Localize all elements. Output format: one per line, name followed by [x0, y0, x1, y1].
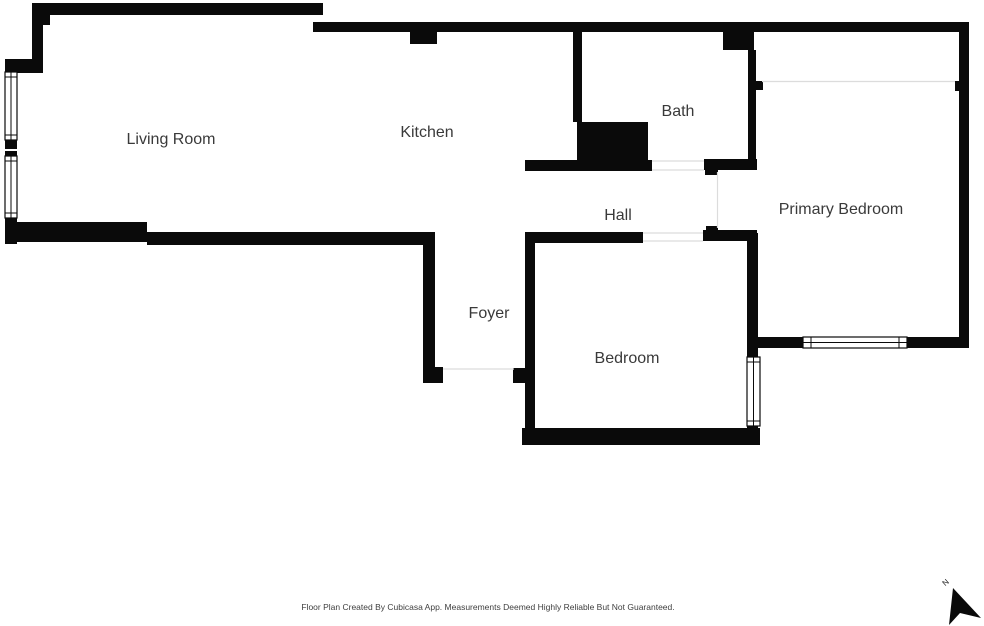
- north-indicator: N: [941, 577, 981, 625]
- room-label-primary-bedroom: Primary Bedroom: [779, 201, 903, 218]
- room-label-bedroom: Bedroom: [595, 350, 660, 367]
- wall-bedroom-bottom: [522, 428, 760, 445]
- window-bedroom-right: [747, 357, 760, 426]
- wall-bath-primary-divider: [748, 50, 756, 162]
- wall-closet-tick-right: [955, 81, 959, 91]
- wall-primary-bottom-left: [755, 337, 803, 348]
- wall-foyer-foot: [423, 367, 443, 383]
- room-label-hall: Hall: [604, 207, 632, 224]
- windows: [5, 72, 907, 426]
- floor-plan-drawing: Living Room Kitchen Bath Hall Primary Be…: [0, 0, 984, 626]
- wall-right-exterior: [959, 22, 969, 348]
- wall-topleft-foot: [5, 59, 43, 73]
- wall-primary-bottom-right: [907, 337, 968, 348]
- wall-bath-mass: [577, 122, 648, 162]
- room-label-bath: Bath: [662, 103, 695, 120]
- wall-closet-tick-left: [756, 81, 763, 90]
- wall-bath-topright-block: [723, 32, 754, 50]
- wall-bedroom-left: [525, 233, 535, 445]
- wall-bath-bottom: [525, 160, 652, 171]
- wall-top-lower: [313, 22, 969, 32]
- wall-bath-left: [573, 32, 582, 122]
- wall-bedroom-left-tick: [513, 368, 525, 383]
- footer-disclaimer: Floor Plan Created By Cubicasa App. Meas…: [301, 602, 674, 612]
- wall-hall-top-tick: [705, 170, 718, 175]
- window-primary-bedroom: [803, 337, 907, 348]
- room-label-living-room: Living Room: [127, 131, 216, 148]
- wall-livingroom-bottom-right: [147, 232, 435, 245]
- wall-kitchen-bump: [410, 32, 437, 44]
- wall-top-upper: [32, 3, 323, 15]
- wall-topleft-column: [32, 3, 50, 25]
- north-arrow-icon: [949, 588, 981, 625]
- door-openings: [443, 82, 955, 370]
- window-living-room-lower: [5, 156, 17, 218]
- wall-foyer-left: [423, 240, 435, 383]
- room-label-kitchen: Kitchen: [400, 124, 453, 141]
- walls: [5, 3, 969, 445]
- floor-plan-page: Living Room Kitchen Bath Hall Primary Be…: [0, 0, 984, 626]
- wall-bedroom-top-left: [525, 232, 643, 243]
- wall-livingroom-bottom-left: [5, 222, 147, 242]
- north-label: N: [941, 577, 951, 588]
- window-living-room-upper: [5, 72, 17, 140]
- wall-bedroom-top-tick: [706, 226, 718, 231]
- wall-divider-foot: [740, 160, 756, 168]
- room-label-foyer: Foyer: [469, 305, 511, 322]
